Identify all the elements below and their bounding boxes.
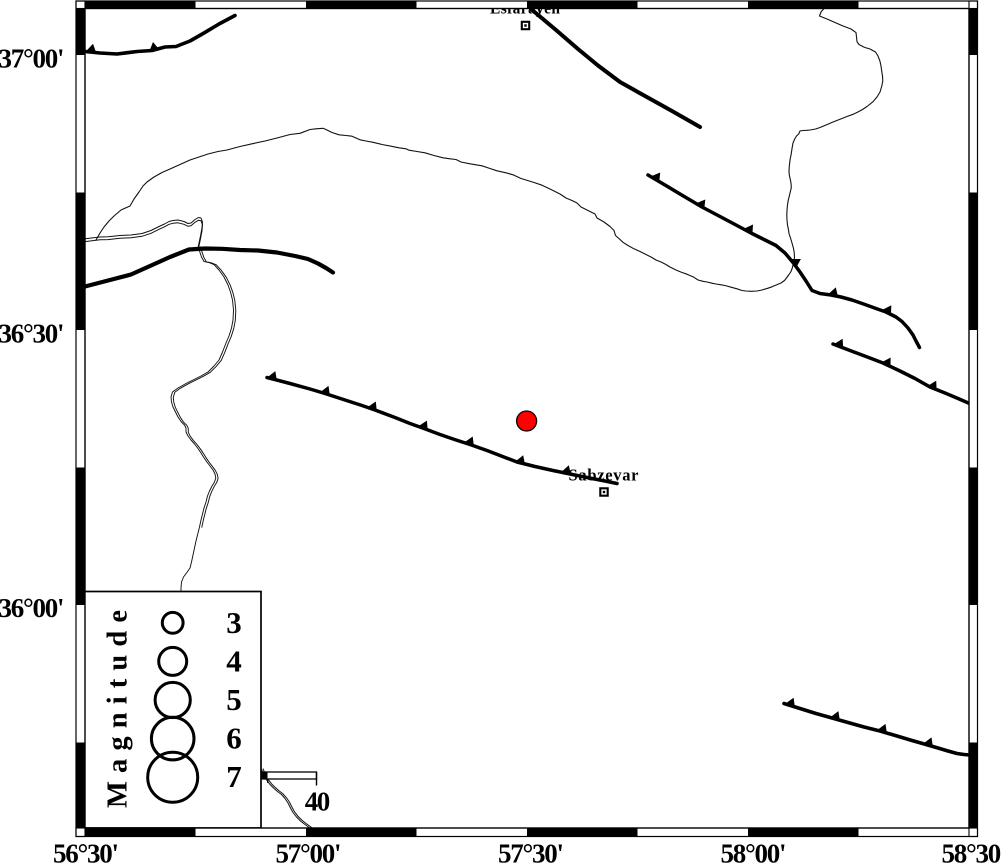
svg-text:37°00': 37°00' (0, 44, 65, 74)
svg-text:5: 5 (226, 682, 242, 717)
svg-text:3: 3 (226, 605, 242, 640)
svg-text:7: 7 (226, 759, 242, 794)
svg-text:6: 6 (226, 721, 242, 756)
svg-text:40: 40 (305, 787, 331, 817)
svg-text:56°30': 56°30' (53, 839, 119, 868)
svg-text:4: 4 (226, 643, 242, 678)
svg-text:57°00': 57°00' (276, 839, 342, 868)
svg-text:58°00': 58°00' (721, 839, 787, 868)
svg-text:Sabzevar: Sabzevar (569, 466, 639, 485)
svg-text:36°30': 36°30' (0, 319, 65, 349)
svg-text:36°00': 36°00' (0, 593, 65, 623)
svg-text:58°30': 58°30' (942, 839, 1001, 868)
svg-text:57°30': 57°30' (498, 839, 564, 868)
